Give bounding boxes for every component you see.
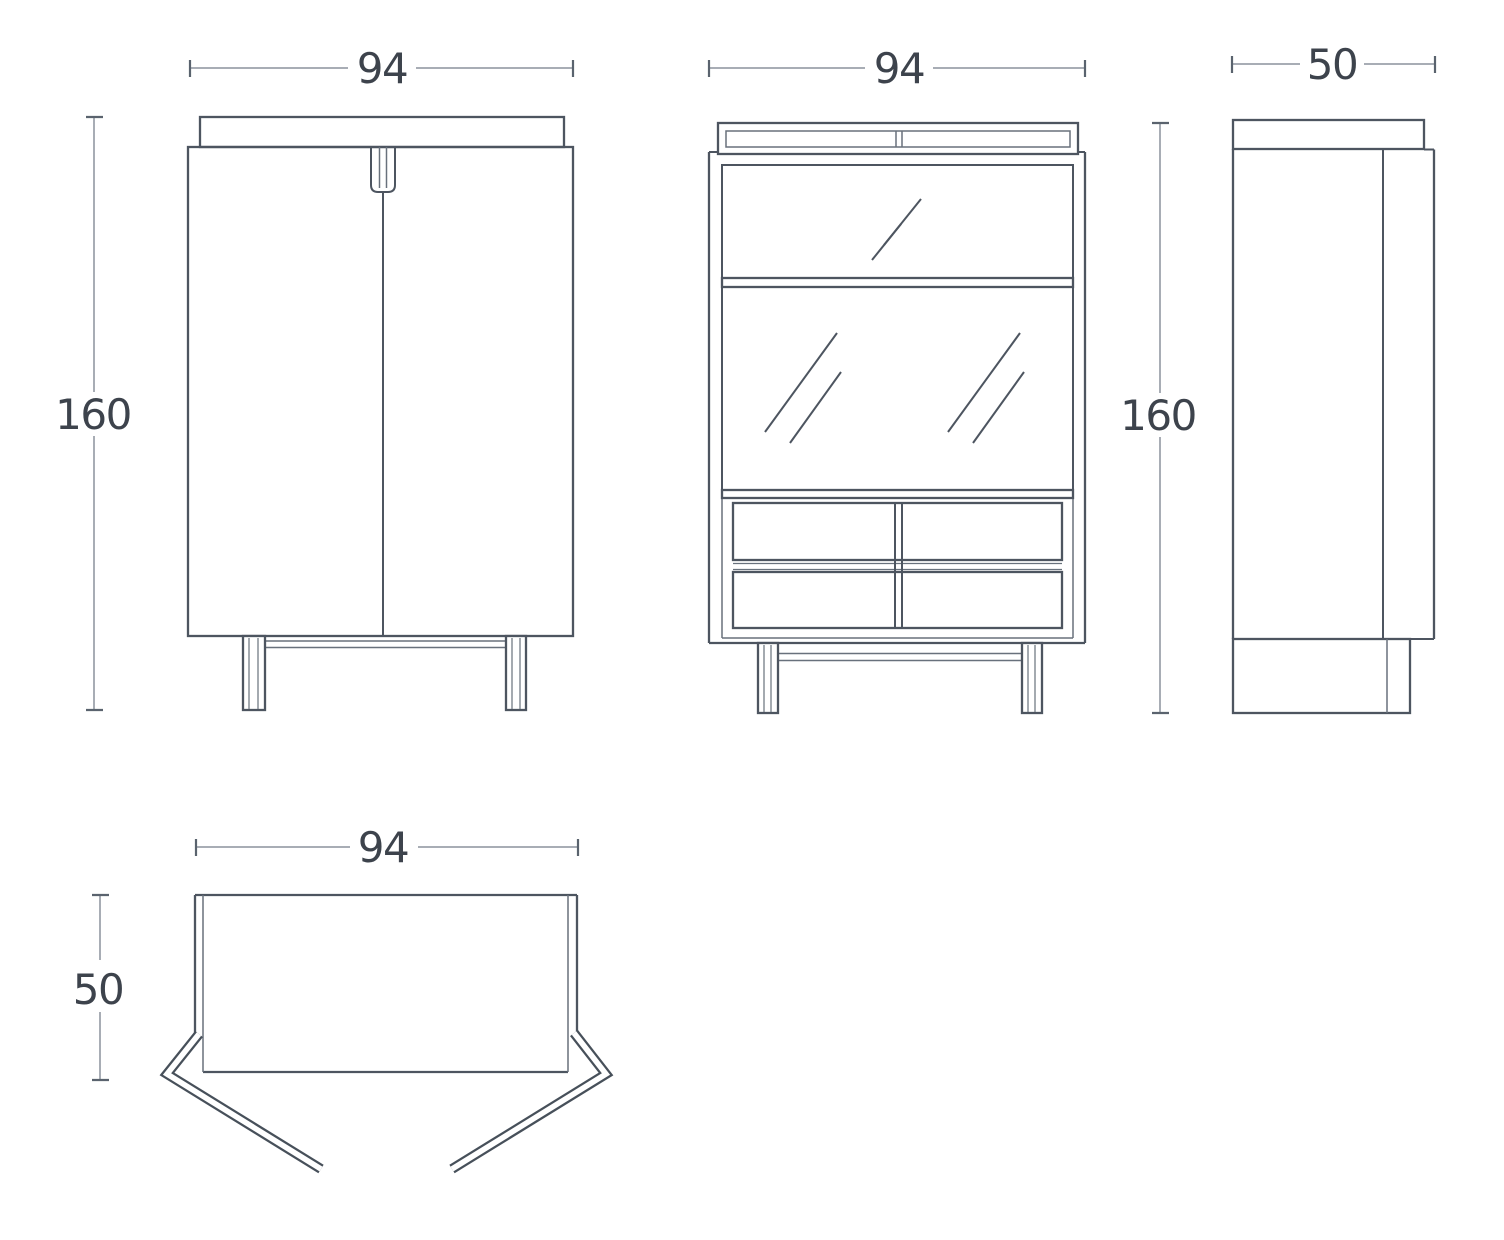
drawer-row-top: [733, 503, 1062, 560]
front-view-closed: 94 160: [55, 44, 573, 710]
cabinet-body: [188, 147, 573, 636]
glass-door: [722, 287, 1073, 490]
plan-width-dimension: 94: [196, 823, 578, 872]
plan-depth-label: 50: [73, 965, 123, 1014]
technical-drawing-page: 94 160: [0, 0, 1504, 1240]
open-width-dimension: 94: [709, 44, 1085, 93]
side-depth-dimension: 50: [1232, 40, 1435, 89]
front-view-open: 94: [709, 44, 1085, 713]
plan-open-doors: [167, 1033, 606, 1169]
drawer-row-bottom: [733, 572, 1062, 628]
side-view: 50: [1232, 40, 1435, 713]
front-legs: [243, 636, 526, 710]
front-height-label: 160: [55, 390, 131, 439]
open-legs: [758, 643, 1042, 713]
cabinet-top-lid: [200, 117, 564, 147]
door-gap-and-handle: [371, 147, 395, 636]
side-depth-label: 50: [1307, 40, 1357, 89]
front-width-label: 94: [357, 44, 407, 93]
side-height-dimension: 160: [1120, 123, 1198, 713]
drawer-block: [733, 503, 1062, 628]
side-height-label: 160: [1120, 391, 1196, 440]
cabinet-orthographic-drawing: 94 160: [0, 0, 1504, 1240]
side-top-lid: [1233, 120, 1424, 149]
front-height-dimension: 160: [55, 117, 132, 710]
plan-view: 94 50: [62, 823, 606, 1169]
right-door-open: [452, 1033, 606, 1169]
side-leg-frame: [1233, 639, 1410, 713]
left-door-open: [167, 1034, 321, 1169]
shelf-divider-band: [722, 278, 1073, 287]
open-width-label: 94: [874, 44, 924, 93]
plan-width-label: 94: [358, 823, 408, 872]
top-gallery-tray: [718, 123, 1078, 154]
glass-flap: [722, 165, 1073, 278]
front-width-dimension: 94: [190, 44, 573, 93]
plan-carcass: [195, 895, 577, 1072]
side-carcass: [1233, 149, 1434, 639]
plan-depth-dimension: 50: [62, 895, 136, 1080]
drawer-divider-band: [722, 490, 1073, 498]
